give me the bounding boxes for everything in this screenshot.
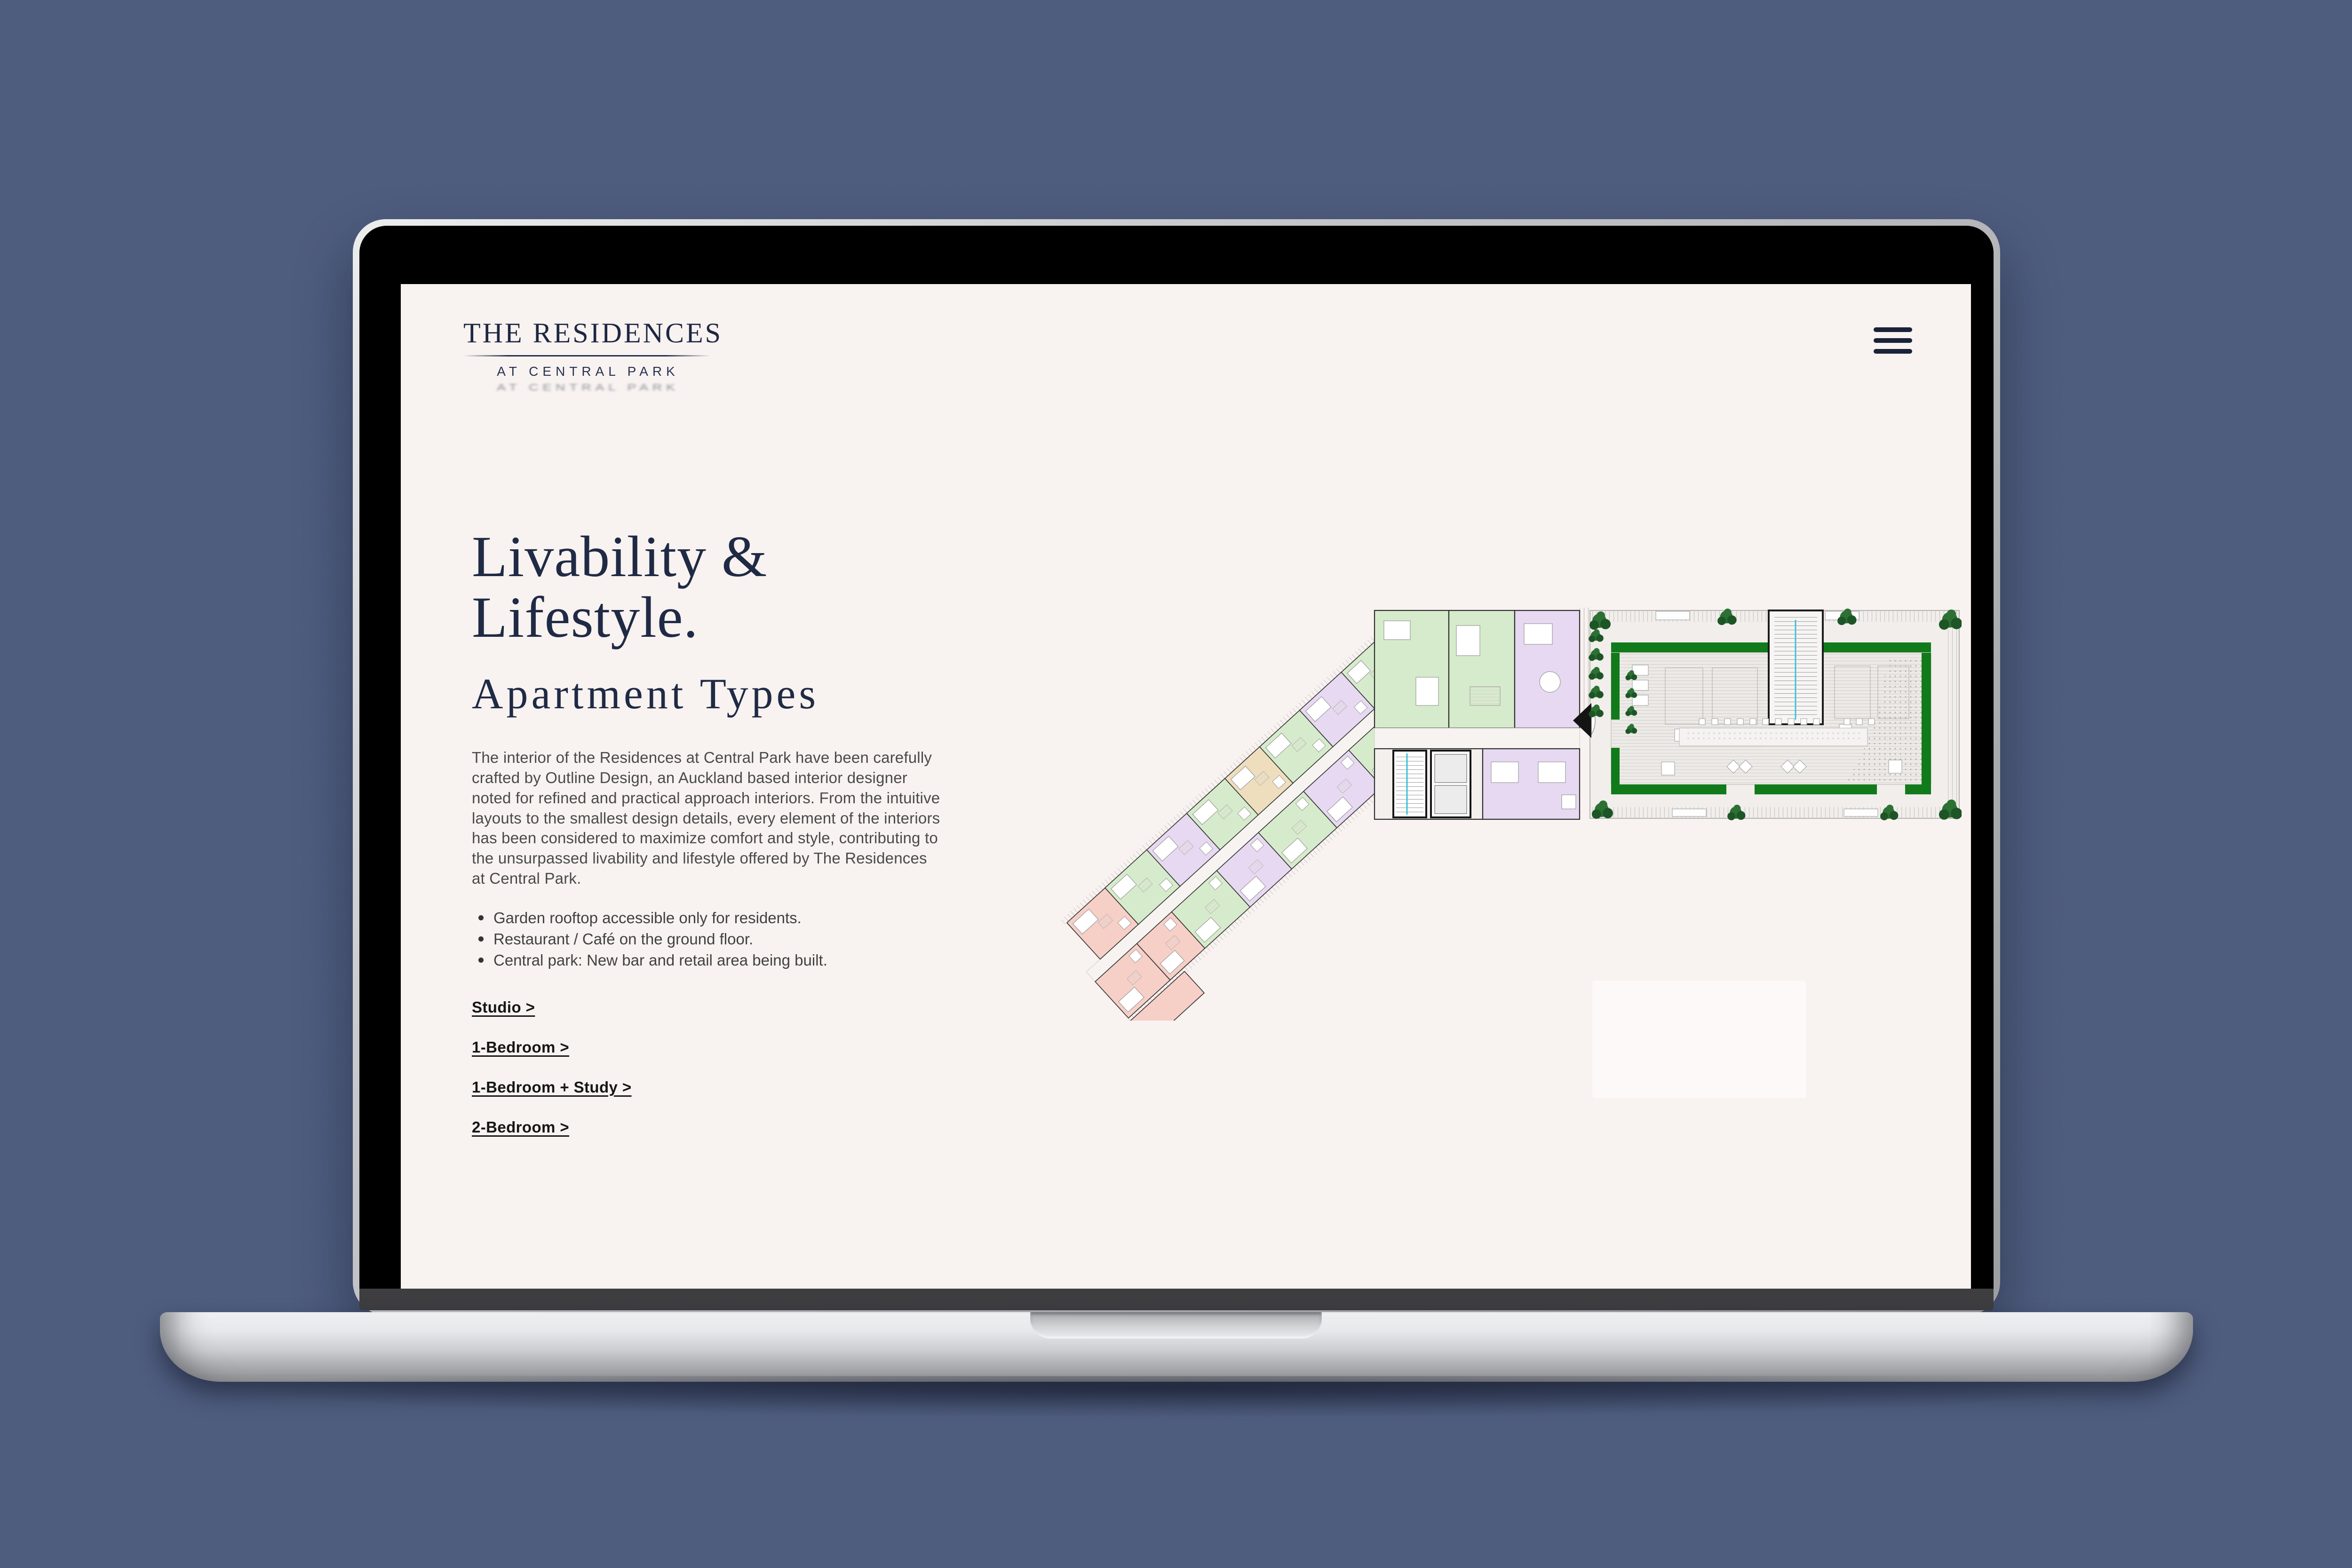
intro-paragraph: The interior of the Residences at Centra… xyxy=(472,748,942,889)
hamburger-menu-icon[interactable] xyxy=(1874,327,1912,354)
desktop-background: THE RESIDENCES AT CENTRAL PARK AT CENTRA… xyxy=(0,0,2352,1568)
logo-subtitle-reflection: AT CENTRAL PARK xyxy=(463,382,713,393)
logo-subtitle: AT CENTRAL PARK xyxy=(463,364,713,379)
bullet-icon xyxy=(478,915,484,920)
plan-stair-core xyxy=(1769,610,1823,724)
browser-viewport: THE RESIDENCES AT CENTRAL PARK AT CENTRA… xyxy=(401,284,1971,1289)
list-item: Garden rooftop accessible only for resid… xyxy=(472,908,966,929)
laptop-hinge xyxy=(359,1289,1994,1310)
link-2-bedroom[interactable]: 2-Bedroom > xyxy=(472,1118,966,1136)
page-title-line1: Livability & xyxy=(472,527,966,587)
feature-list: Garden rooftop accessible only for resid… xyxy=(472,908,966,971)
hero-text-block: Livability & Lifestyle. Apartment Types … xyxy=(472,527,966,1158)
laptop-shadow xyxy=(226,1376,2126,1418)
page-subtitle: Apartment Types xyxy=(472,669,966,719)
list-item: Restaurant / Café on the ground floor. xyxy=(472,929,966,950)
laptop-base-notch xyxy=(1030,1312,1322,1338)
site-logo: THE RESIDENCES AT CENTRAL PARK AT CENTRA… xyxy=(463,317,713,395)
logo-title: THE RESIDENCES xyxy=(463,317,713,349)
link-1-bedroom[interactable]: 1-Bedroom > xyxy=(472,1038,966,1056)
hamburger-bar xyxy=(1874,327,1912,332)
hamburger-bar xyxy=(1874,349,1912,354)
plan-rooftop-terrace xyxy=(1573,609,1962,820)
bullet-icon xyxy=(478,958,484,963)
logo-divider xyxy=(463,355,710,356)
apartment-type-links: Studio > 1-Bedroom > 1-Bedroom + Study >… xyxy=(472,998,966,1136)
page-title: Livability & Lifestyle. xyxy=(472,527,966,648)
floor-plan-image xyxy=(1044,607,1962,1021)
plan-long-table xyxy=(1679,728,1867,746)
list-item: Central park: New bar and retail area be… xyxy=(472,950,966,971)
hamburger-bar xyxy=(1874,338,1912,343)
plan-central-core xyxy=(1375,608,1591,819)
link-studio[interactable]: Studio > xyxy=(472,998,966,1016)
link-1-bedroom-study[interactable]: 1-Bedroom + Study > xyxy=(472,1078,966,1096)
page-title-line2: Lifestyle. xyxy=(472,587,966,648)
bullet-icon xyxy=(478,936,484,942)
